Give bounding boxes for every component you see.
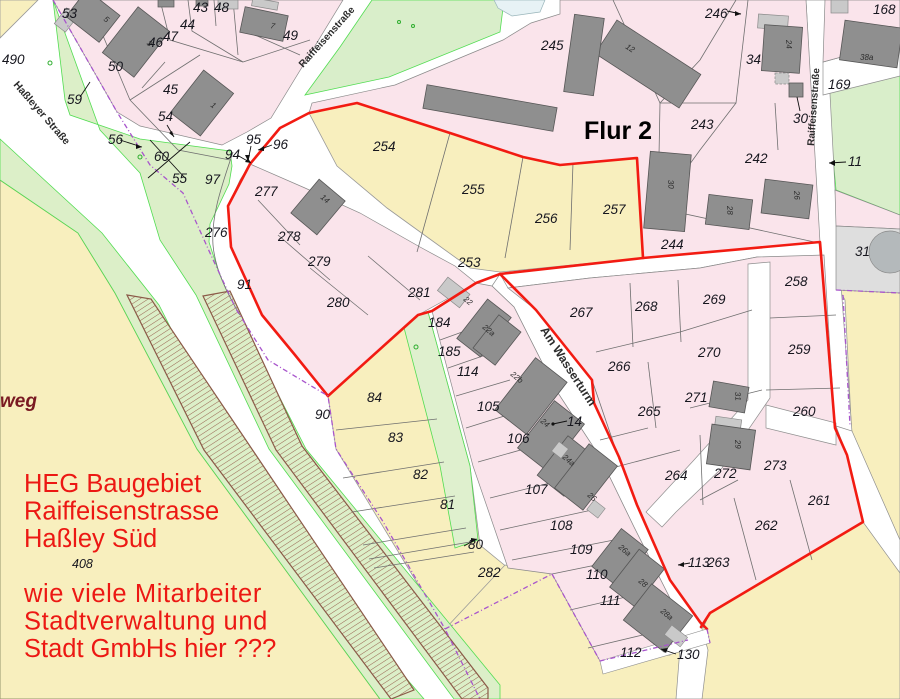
svg-text:243: 243 <box>690 117 714 132</box>
svg-text:43: 43 <box>193 0 209 15</box>
svg-text:276: 276 <box>204 225 228 240</box>
svg-text:110: 110 <box>586 567 608 582</box>
svg-text:56: 56 <box>108 132 124 147</box>
svg-text:246: 246 <box>704 6 728 21</box>
svg-text:60: 60 <box>154 149 170 164</box>
svg-text:109: 109 <box>570 542 593 557</box>
svg-text:490: 490 <box>2 52 25 67</box>
svg-text:281: 281 <box>407 285 431 300</box>
svg-text:269: 269 <box>702 292 726 307</box>
svg-text:53: 53 <box>62 6 78 21</box>
svg-text:267: 267 <box>569 305 593 320</box>
svg-text:31: 31 <box>733 392 743 402</box>
svg-text:245: 245 <box>540 38 564 53</box>
svg-text:408: 408 <box>72 557 93 571</box>
svg-text:130: 130 <box>677 647 700 662</box>
svg-text:270: 270 <box>697 345 721 360</box>
svg-text:97: 97 <box>205 172 221 187</box>
svg-text:96: 96 <box>273 137 289 152</box>
svg-text:105: 105 <box>477 399 500 414</box>
svg-text:264: 264 <box>664 468 688 483</box>
svg-text:242: 242 <box>744 151 768 166</box>
svg-text:Flur 2: Flur 2 <box>584 117 652 145</box>
svg-text:111: 111 <box>600 593 621 608</box>
svg-text:31: 31 <box>855 244 870 259</box>
svg-text:256: 256 <box>534 211 558 226</box>
svg-text:59: 59 <box>67 92 83 107</box>
svg-text:255: 255 <box>461 182 485 197</box>
svg-text:wie viele Mitarbeiter: wie viele Mitarbeiter <box>23 580 262 608</box>
svg-text:113: 113 <box>688 555 710 570</box>
svg-text:11: 11 <box>848 154 862 169</box>
svg-text:30: 30 <box>793 111 809 126</box>
svg-text:265: 265 <box>637 404 661 419</box>
svg-text:266: 266 <box>607 359 631 374</box>
svg-text:244: 244 <box>660 237 684 252</box>
svg-text:268: 268 <box>634 299 658 314</box>
svg-text:38a: 38a <box>860 53 874 62</box>
svg-text:253: 253 <box>457 255 481 270</box>
svg-text:90: 90 <box>315 407 331 422</box>
svg-text:Stadtverwaltung und: Stadtverwaltung und <box>24 608 268 636</box>
svg-text:263: 263 <box>706 555 730 570</box>
svg-text:271: 271 <box>684 390 708 405</box>
svg-text:82: 82 <box>413 467 429 482</box>
svg-text:47: 47 <box>163 29 179 44</box>
svg-text:weg: weg <box>0 391 37 412</box>
svg-text:49: 49 <box>283 28 299 43</box>
svg-text:279: 279 <box>307 254 331 269</box>
svg-text:55: 55 <box>172 171 188 186</box>
svg-text:26: 26 <box>792 190 802 201</box>
svg-text:185: 185 <box>438 344 461 359</box>
svg-text:254: 254 <box>372 139 396 154</box>
svg-text:168: 168 <box>873 2 896 17</box>
svg-text:81: 81 <box>440 497 455 512</box>
svg-text:261: 261 <box>807 493 831 508</box>
svg-text:34: 34 <box>746 52 761 67</box>
svg-text:108: 108 <box>550 518 573 533</box>
svg-text:282: 282 <box>477 565 501 580</box>
svg-text:114: 114 <box>457 364 479 379</box>
svg-text:Haßley Süd: Haßley Süd <box>24 525 157 553</box>
svg-text:91: 91 <box>237 277 252 292</box>
svg-text:Raiffeisenstrasse: Raiffeisenstrasse <box>24 498 219 526</box>
svg-text:106: 106 <box>507 431 530 446</box>
svg-text:24: 24 <box>784 39 794 50</box>
svg-text:258: 258 <box>784 274 808 289</box>
svg-text:83: 83 <box>388 430 404 445</box>
svg-text:Stadt GmbHs hier ???: Stadt GmbHs hier ??? <box>24 635 276 663</box>
svg-text:95: 95 <box>246 132 262 147</box>
svg-text:29: 29 <box>733 439 743 450</box>
svg-text:14: 14 <box>567 414 582 429</box>
svg-text:112: 112 <box>620 645 642 660</box>
svg-text:45: 45 <box>163 82 179 97</box>
svg-text:84: 84 <box>367 390 382 405</box>
svg-text:48: 48 <box>214 0 230 15</box>
svg-text:262: 262 <box>754 518 778 533</box>
svg-text:44: 44 <box>180 17 195 32</box>
svg-text:278: 278 <box>277 229 301 244</box>
svg-text:54: 54 <box>158 109 173 124</box>
svg-text:50: 50 <box>108 59 124 74</box>
svg-text:169: 169 <box>828 77 851 92</box>
svg-text:28: 28 <box>725 205 735 216</box>
svg-text:80: 80 <box>468 537 484 552</box>
svg-text:30: 30 <box>666 180 676 190</box>
svg-text:HEG Baugebiet: HEG Baugebiet <box>24 470 201 498</box>
svg-text:277: 277 <box>254 184 278 199</box>
svg-text:107: 107 <box>525 482 548 497</box>
svg-text:259: 259 <box>787 342 811 357</box>
svg-text:260: 260 <box>792 404 816 419</box>
svg-text:280: 280 <box>326 295 350 310</box>
svg-text:184: 184 <box>428 315 451 330</box>
svg-text:273: 273 <box>763 458 787 473</box>
svg-text:94: 94 <box>225 147 240 162</box>
svg-text:272: 272 <box>713 466 737 481</box>
svg-text:257: 257 <box>602 202 626 217</box>
